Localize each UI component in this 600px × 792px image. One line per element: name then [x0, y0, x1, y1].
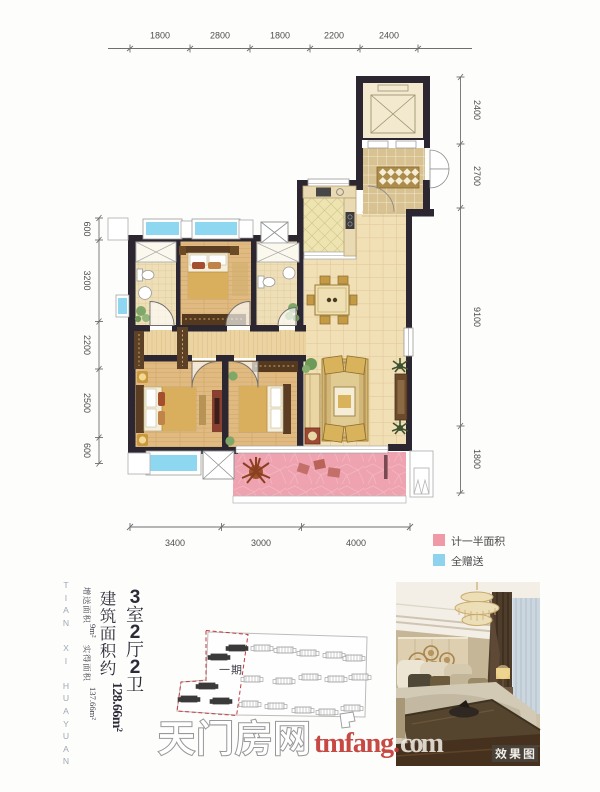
svg-text:U: U [63, 731, 69, 741]
svg-text:2400: 2400 [379, 31, 399, 41]
svg-text:2200: 2200 [324, 31, 344, 41]
svg-text:I: I [65, 593, 67, 603]
svg-text:3200: 3200 [82, 270, 92, 290]
svg-text:1800: 1800 [472, 449, 482, 469]
svg-text:600: 600 [82, 221, 92, 236]
svg-text:X: X [63, 643, 69, 653]
svg-text:N: N [63, 756, 69, 766]
svg-text:2200: 2200 [82, 335, 92, 355]
svg-text:1800: 1800 [270, 31, 290, 41]
svg-text:9m²: 9m² [88, 624, 98, 638]
svg-text:H: H [63, 681, 69, 691]
svg-text:U: U [63, 693, 69, 703]
svg-text:128.66m²: 128.66m² [109, 682, 124, 732]
svg-text:T: T [63, 580, 69, 590]
svg-text:3: 3 [130, 587, 141, 608]
svg-text:Y: Y [63, 719, 69, 729]
svg-text:2: 2 [130, 657, 141, 678]
svg-text:9100: 9100 [472, 307, 482, 327]
svg-text:2700: 2700 [472, 166, 482, 186]
svg-text:2: 2 [130, 622, 141, 643]
svg-text:2800: 2800 [210, 31, 230, 41]
svg-text:A: A [63, 706, 69, 716]
svg-text:2400: 2400 [472, 100, 482, 120]
svg-text:4000: 4000 [346, 538, 366, 548]
svg-text:com: com [400, 728, 444, 759]
svg-text:137.66m²: 137.66m² [88, 687, 98, 720]
svg-text:1800: 1800 [150, 31, 170, 41]
svg-text:A: A [63, 605, 69, 615]
svg-text:600: 600 [82, 443, 92, 458]
svg-text:I: I [65, 656, 67, 666]
svg-text:N: N [63, 618, 69, 628]
svg-text:A: A [63, 744, 69, 754]
svg-text:2500: 2500 [82, 393, 92, 413]
svg-text:tmfang.: tmfang. [314, 728, 400, 759]
svg-text:3000: 3000 [251, 538, 271, 548]
svg-text:3400: 3400 [165, 538, 185, 548]
